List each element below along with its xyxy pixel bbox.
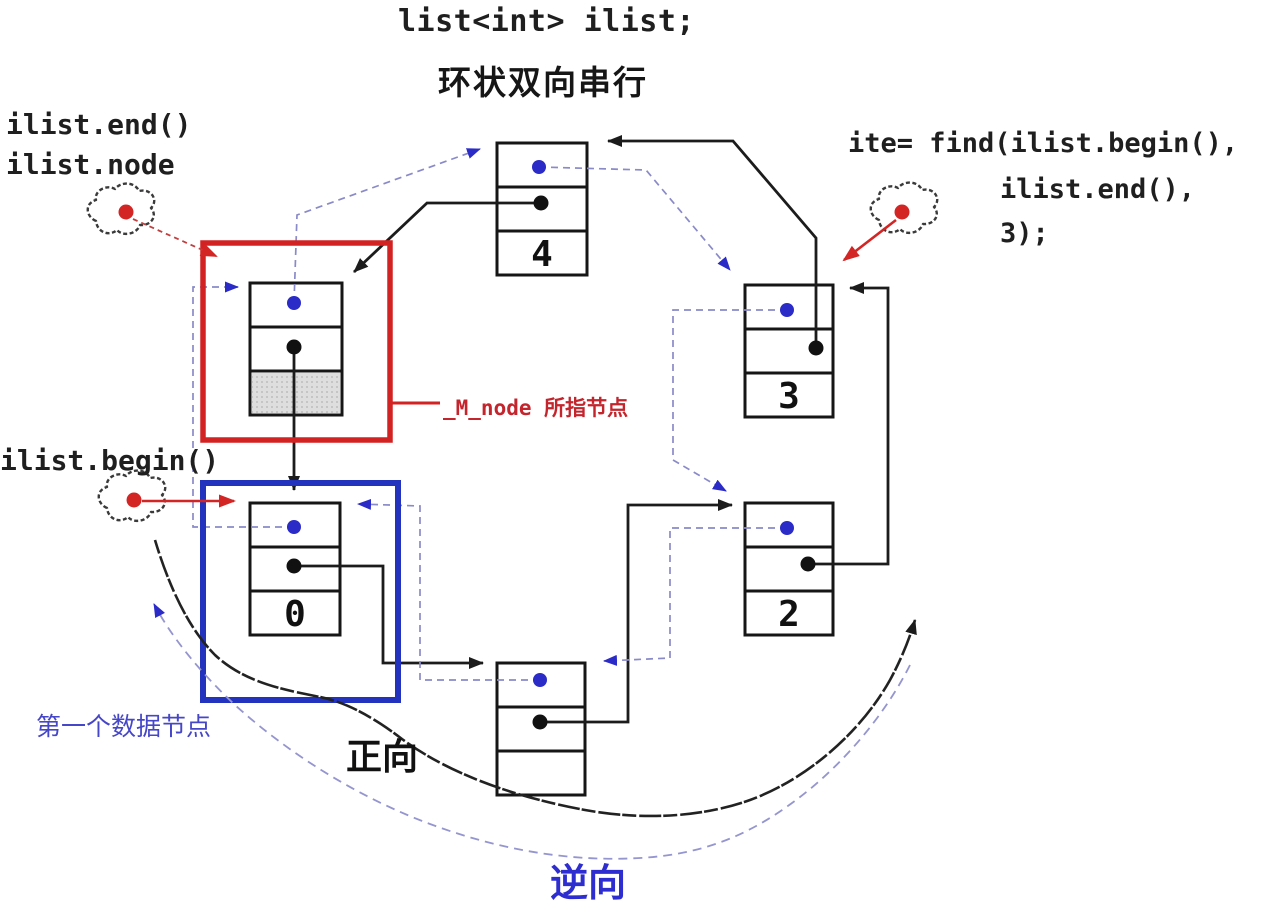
next-pointer-dot: [801, 557, 816, 572]
next-pointer-dot: [287, 340, 302, 355]
iterator-dot: [119, 205, 134, 220]
prev-arrow-end-to-4: [294, 149, 480, 303]
ilist-end-label: ilist.end(): [6, 108, 191, 141]
find-call-line1: ite= find(ilist.begin(),: [848, 128, 1238, 159]
node-2-value: 2: [744, 593, 834, 637]
backward-direction-label: 逆向: [550, 852, 626, 907]
next-pointer-dot: [809, 341, 824, 356]
prev-pointer-dot: [780, 303, 794, 317]
end-iterator-cloud: [88, 184, 216, 256]
forward-direction-label: 正向: [346, 728, 418, 780]
begin-iterator-cloud: [99, 471, 234, 521]
prev-pointer-dot: [532, 160, 546, 174]
node-0-value: 0: [250, 593, 340, 637]
circular-doubly-linked-list-diagram: list<int> ilist; 环状双向串行 ilist.end() ilis…: [0, 0, 1278, 908]
node-4-value: 4: [497, 233, 587, 277]
ilist-node-label: ilist.node: [6, 148, 175, 181]
prev-arrow-1-to-0: [358, 504, 540, 680]
shaded-value-cell: [252, 373, 340, 413]
prev-pointer-dot: [780, 521, 794, 535]
prev-pointer-dot: [287, 520, 301, 534]
next-pointer-dot: [534, 196, 549, 211]
find-call-line3: 3);: [1000, 218, 1049, 249]
code-title: list<int> ilist;: [398, 4, 695, 39]
prev-pointer-dot: [287, 296, 301, 310]
next-pointer-dot: [533, 715, 548, 730]
ite-iterator-arrow: [844, 220, 896, 260]
iterator-dot: [127, 493, 142, 508]
m-node-annotation: _M_node 所指节点: [443, 392, 628, 422]
ite-find-result-cloud: [844, 183, 937, 260]
node-3-value: 3: [744, 375, 834, 419]
first-data-node-annotation: 第一个数据节点: [36, 707, 211, 743]
prev-pointer-dot: [533, 673, 547, 687]
next-pointer-dot: [287, 559, 302, 574]
diagram-subtitle: 环状双向串行: [438, 56, 648, 104]
find-call-line2: ilist.end(),: [1000, 174, 1195, 205]
ilist-begin-label: ilist.begin(): [0, 444, 219, 477]
iterator-dot: [895, 205, 910, 220]
